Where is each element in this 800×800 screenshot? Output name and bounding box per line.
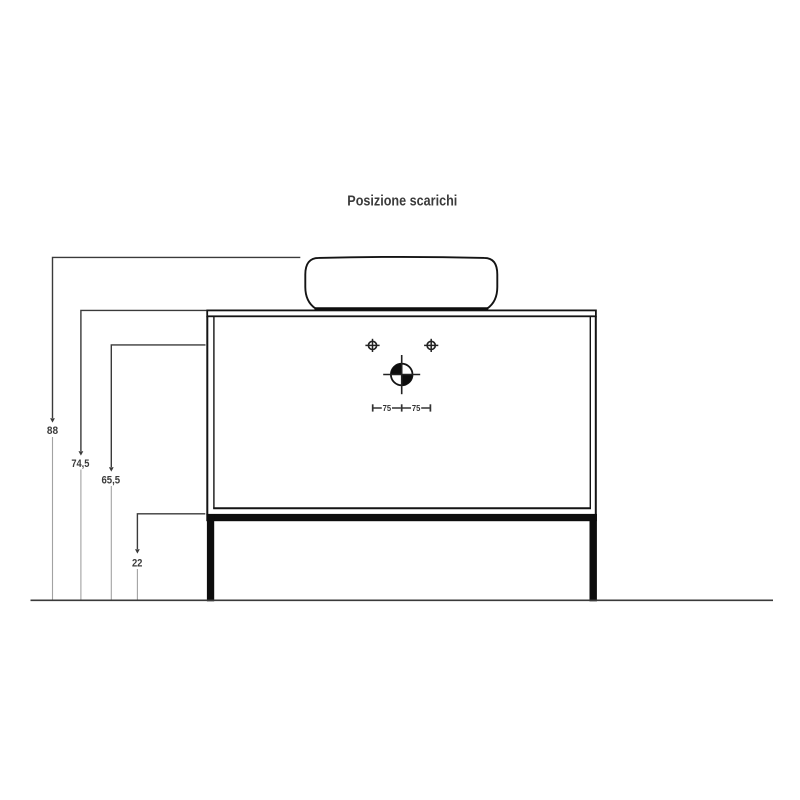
svg-text:75: 75 xyxy=(412,403,421,413)
svg-text:22: 22 xyxy=(132,557,143,569)
svg-text:75: 75 xyxy=(383,403,392,413)
svg-text:74,5: 74,5 xyxy=(71,458,89,470)
svg-text:88: 88 xyxy=(47,425,58,437)
svg-text:65,5: 65,5 xyxy=(101,474,120,486)
svg-text:Posizione scarichi: Posizione scarichi xyxy=(347,194,457,210)
